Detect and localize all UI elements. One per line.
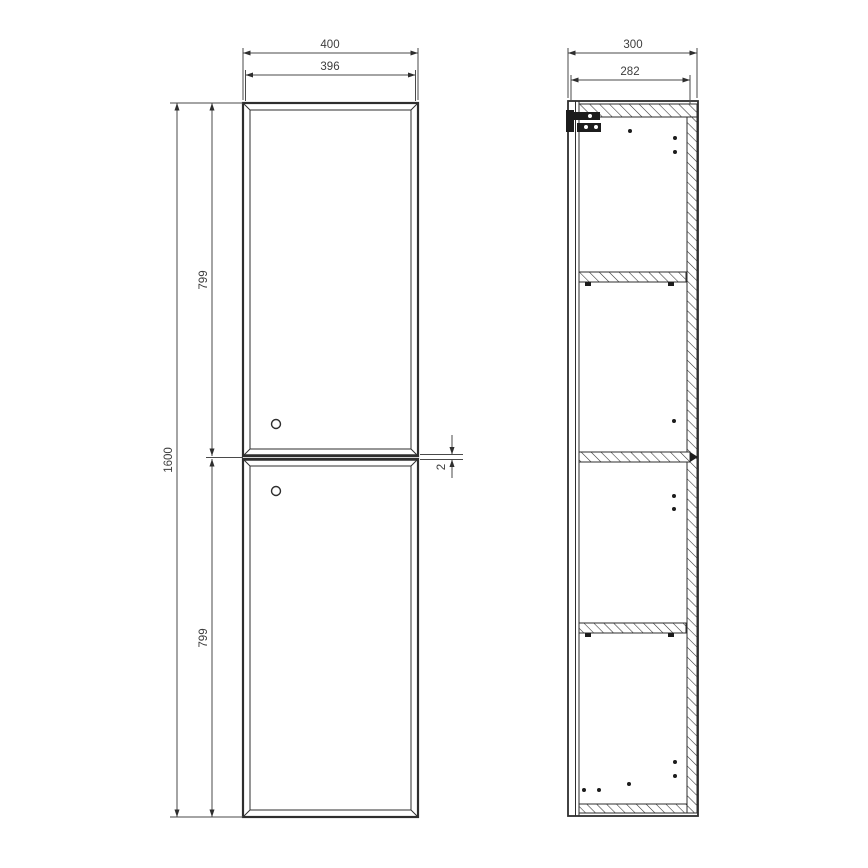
drill-hole xyxy=(672,494,676,498)
front-view: 400 396 1600 799 799 xyxy=(163,39,463,817)
drill-hole xyxy=(673,760,677,764)
drill-hole xyxy=(597,788,601,792)
dim-door-bottom-height: 799 xyxy=(198,459,212,817)
side-shelf-1 xyxy=(579,272,686,286)
dim-label-400: 400 xyxy=(320,39,339,51)
dim-label-799-top: 799 xyxy=(198,270,210,289)
dim-label-1600: 1600 xyxy=(163,447,175,473)
cabinet-drawing-svg: 400 396 1600 799 799 xyxy=(0,0,868,868)
shelf-pin xyxy=(668,282,674,286)
dim-label-799-bottom: 799 xyxy=(198,628,210,647)
drill-hole xyxy=(673,136,677,140)
door-top-outline xyxy=(243,103,418,456)
technical-drawing-page: 400 396 1600 799 799 xyxy=(0,0,868,868)
front-door-bottom xyxy=(243,459,418,817)
side-shelf-middle-fixed xyxy=(579,452,698,462)
handle-hole-top-door xyxy=(272,420,281,429)
dim-label-396: 396 xyxy=(320,61,339,73)
hinge-screw xyxy=(594,125,598,129)
drill-hole xyxy=(672,507,676,511)
dim-front-width-inner: 396 xyxy=(246,61,416,101)
dim-front-height-total: 1600 xyxy=(163,103,243,817)
shelf-panel xyxy=(579,452,690,462)
hinge-screw xyxy=(584,125,588,129)
front-door-top xyxy=(243,103,418,456)
dim-side-depth-inner: 282 xyxy=(571,66,690,104)
door-bottom-outline xyxy=(243,459,418,817)
shelf-panel xyxy=(579,272,686,282)
shelf-pin xyxy=(668,633,674,637)
dim-label-2: 2 xyxy=(436,464,448,470)
drill-hole xyxy=(582,788,586,792)
side-shelf-2 xyxy=(579,623,686,637)
drill-hole xyxy=(673,774,677,778)
shelf-pin xyxy=(585,633,591,637)
side-bottom-panel xyxy=(579,804,687,813)
drill-hole xyxy=(628,129,632,133)
drill-hole xyxy=(627,782,631,786)
dim-door-gap: 2 xyxy=(420,435,463,478)
shelf-pin xyxy=(585,282,591,286)
door-top-bevel-inner xyxy=(250,110,411,449)
side-view: 300 282 xyxy=(566,39,698,816)
side-back-panel xyxy=(687,117,697,813)
drill-hole xyxy=(673,150,677,154)
hinge-cup xyxy=(566,110,574,132)
hinge-arm-upper xyxy=(574,112,600,120)
handle-hole-bottom-door xyxy=(272,487,281,496)
hinge-icon xyxy=(566,110,601,132)
dim-label-282: 282 xyxy=(620,66,639,78)
dim-door-top-height: 799 xyxy=(198,103,243,458)
hinge-screw xyxy=(588,114,592,118)
door-bottom-bevel-inner xyxy=(250,466,411,810)
dim-label-300: 300 xyxy=(623,39,642,51)
drill-hole xyxy=(672,419,676,423)
shelf-panel xyxy=(579,623,686,633)
